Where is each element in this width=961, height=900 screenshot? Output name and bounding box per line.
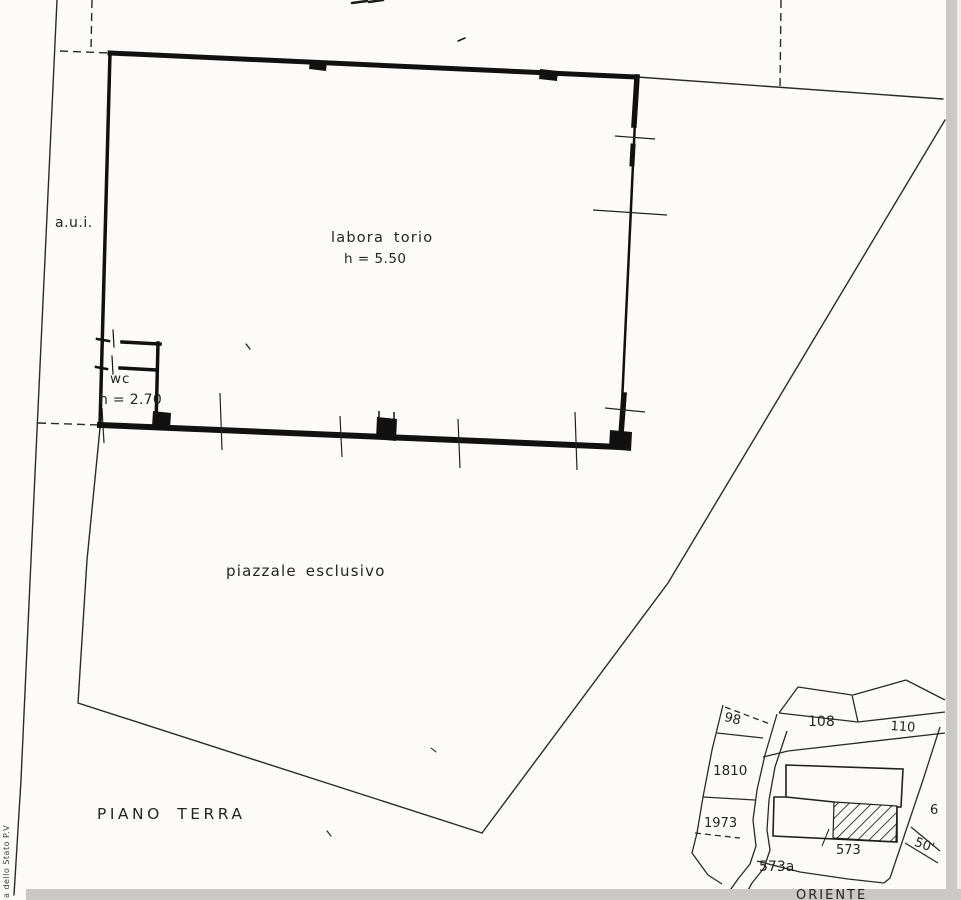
wc-room-label: wc <box>110 373 130 387</box>
scan-stray-marks <box>246 0 465 836</box>
window-tick-marks <box>220 136 667 470</box>
margin-side-note: a dello Stato P.V <box>3 825 11 898</box>
floorplan-drawing <box>0 0 961 900</box>
laboratory-height-note: h = 5.50 <box>344 253 407 267</box>
parcel-number-108: 108 <box>808 715 835 729</box>
adjacent-strip-label: a.u.i. <box>55 216 93 230</box>
floor-title: PIANO TERRA <box>97 807 246 823</box>
parcel-number-98: 98 <box>723 711 742 728</box>
wc-height-note: h = 2.70 <box>99 393 162 407</box>
building-walls <box>100 53 637 447</box>
hatched-subject-area <box>833 802 897 842</box>
parcel-number-6: 6 <box>930 804 938 817</box>
scanned-floor-plan-page: a.u.i. labora torio h = 5.50 wc h = 2.70… <box>0 0 961 900</box>
boundary-dashed-lines <box>38 0 781 425</box>
subject-building-footprint <box>773 765 903 846</box>
courtyard-label: piazzale esclusivo <box>226 564 386 579</box>
laboratory-room-label: labora torio <box>331 231 433 246</box>
property-boundary-lines <box>14 0 945 895</box>
parcel-number-110: 110 <box>890 720 916 735</box>
parcel-number-1810: 1810 <box>713 765 747 779</box>
inset-caption-fragment: ORIENTE <box>796 889 867 900</box>
scan-edge-right-highlight <box>957 0 961 900</box>
parcel-number-573a: 573a <box>759 860 794 874</box>
parcel-number-573: 573 <box>836 844 861 857</box>
parcel-number-1973: 1973 <box>704 817 737 830</box>
